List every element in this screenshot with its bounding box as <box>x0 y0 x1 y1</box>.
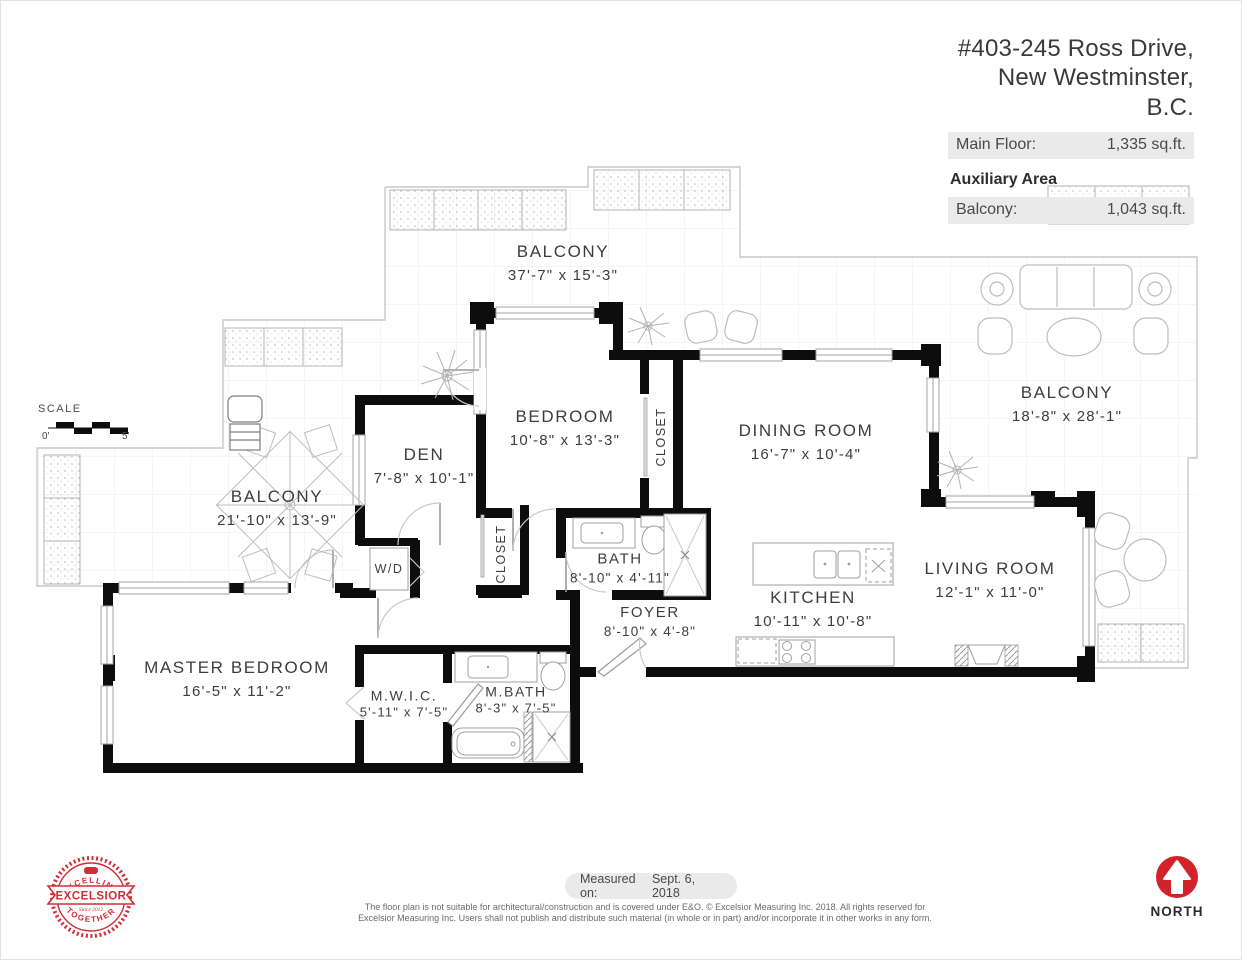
auxiliary-area-title: Auxiliary Area <box>950 171 1194 189</box>
logo-name: EXCELSIOR <box>56 891 127 903</box>
room-label-bedroom: BEDROOM 10'-8" x 13'-3" <box>510 404 620 452</box>
room-label-mbath: M.BATH 8'-3" x 7'-5" <box>475 682 556 717</box>
room-label-bath: BATH 8'-10" x 4'-11" <box>570 549 670 586</box>
room-label-living: LIVING ROOM 12'-1" x 11'-0" <box>925 556 1056 604</box>
balcony-area-row: Balcony: 1,043 sq.ft. <box>948 197 1194 224</box>
room-label-master: MASTER BEDROOM 16'-5" x 11'-2" <box>144 655 330 703</box>
balcony-area-label: Balcony: <box>956 201 1017 219</box>
main-floor-value: 1,335 sq.ft. <box>1107 136 1186 154</box>
excelsior-logo: EXCELLING TOGETHER EXCELSIOR Since 2012 <box>48 858 134 936</box>
scale-end: 5' <box>122 431 129 442</box>
main-floor-row: Main Floor: 1,335 sq.ft. <box>948 132 1194 159</box>
disclaimer: The floor plan is not suitable for archi… <box>300 902 990 925</box>
washer-dryer-label: W/D <box>375 562 404 576</box>
address-line1: #403-245 Ross Drive, <box>948 34 1194 63</box>
room-label-den: DEN 7'-8" x 10'-1" <box>374 442 475 490</box>
scale-start: 0' <box>42 431 49 442</box>
room-label-balcony-top: BALCONY 37'-7" x 15'-3" <box>508 239 618 287</box>
main-floor-label: Main Floor: <box>956 136 1036 154</box>
north-indicator: NORTH <box>1146 852 1208 919</box>
balcony-area-value: 1,043 sq.ft. <box>1107 201 1186 219</box>
address-line2: New Westminster, B.C. <box>948 63 1194 122</box>
room-label-foyer: FOYER 8'-10" x 4'-8" <box>604 603 696 641</box>
room-label-mwic: M.W.I.C. 5'-11" x 7'-5" <box>360 686 449 721</box>
closet-label-bedroom: CLOSET <box>654 407 668 466</box>
logo-since: Since 2012 <box>79 907 104 913</box>
scale-bar <box>48 422 128 434</box>
closet-label-hall: CLOSET <box>494 524 508 583</box>
north-label: NORTH <box>1146 904 1208 919</box>
fireplace <box>955 645 1018 666</box>
measured-on-date: Sept. 6, 2018 <box>652 872 722 900</box>
room-label-balcony-right: BALCONY 18'-8" x 28'-1" <box>1012 380 1122 428</box>
scale-title: SCALE <box>38 403 82 415</box>
room-label-dining: DINING ROOM 16'-7" x 10'-4" <box>739 418 874 466</box>
room-label-balcony-left: BALCONY 21'-10" x 13'-9" <box>217 484 337 532</box>
header: #403-245 Ross Drive, New Westminster, B.… <box>948 34 1194 224</box>
measured-on-label: Measured on: <box>580 872 652 900</box>
measured-on-badge: Measured on: Sept. 6, 2018 <box>565 873 737 899</box>
disclaimer-line2: Excelsior Measuring Inc. Users shall not… <box>300 913 990 924</box>
address-title: #403-245 Ross Drive, New Westminster, B.… <box>948 34 1194 122</box>
floorplan-page: EXCELLING TOGETHER EXCELSIOR Since 2012 … <box>0 0 1242 960</box>
room-label-kitchen: KITCHEN 10'-11" x 10'-8" <box>754 585 873 633</box>
disclaimer-line1: The floor plan is not suitable for archi… <box>300 902 990 913</box>
